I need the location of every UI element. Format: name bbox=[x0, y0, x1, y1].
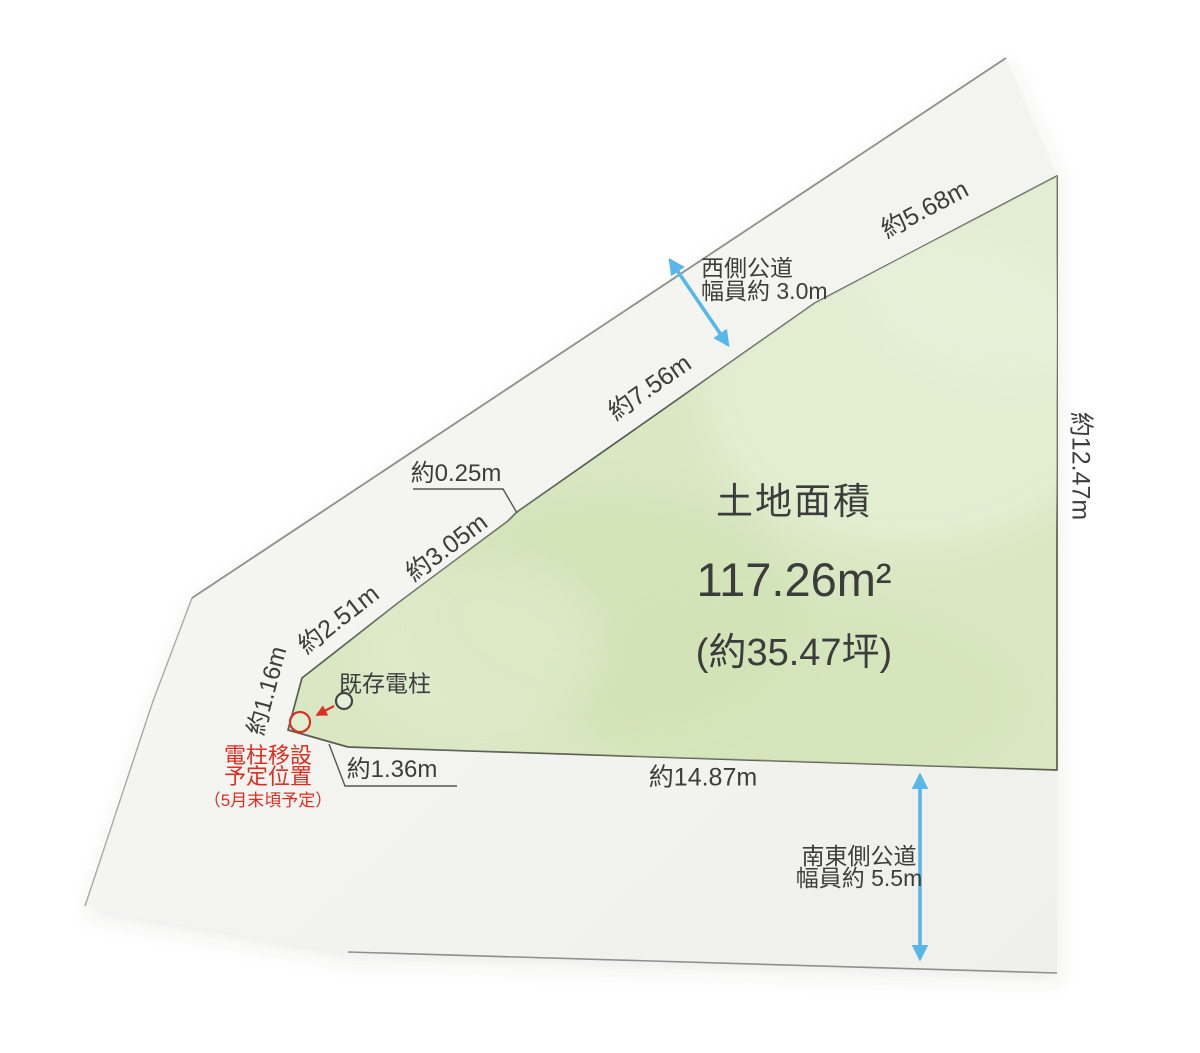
southeast-road-label: 南東側公道 幅員約 5.5m bbox=[796, 845, 923, 889]
dim-12-47m: 約12.47m bbox=[1068, 412, 1093, 520]
west-road-width: 幅員約 3.0m bbox=[701, 280, 828, 303]
land-area-tsubo: (約35.47坪) bbox=[696, 621, 892, 676]
pole-relocation-line1: 電柱移設 bbox=[204, 745, 332, 766]
land-area-title: 土地面積 bbox=[696, 471, 892, 525]
land-area-block: 土地面積 117.26m² (約35.47坪) bbox=[696, 471, 892, 676]
land-area-sqm: 117.26m² bbox=[696, 552, 892, 607]
dim-14-87m: 約14.87m bbox=[649, 766, 757, 791]
relocated-pole-marker bbox=[290, 712, 310, 732]
west-road-label: 西側公道 幅員約 3.0m bbox=[701, 257, 828, 303]
land-plot-diagram: 約5.68m 約7.56m 約0.25m 約3.05m 約2.51m 約1.16… bbox=[0, 0, 1200, 1053]
southeast-road-width: 幅員約 5.5m bbox=[796, 867, 923, 889]
existing-pole-label: 既存電柱 bbox=[339, 673, 431, 696]
dim-1-36m: 約1.36m bbox=[347, 758, 438, 782]
west-road-name: 西側公道 bbox=[701, 257, 828, 280]
pole-relocation-label: 電柱移設 予定位置 （5月末頃予定） bbox=[204, 745, 332, 811]
southeast-road-name: 南東側公道 bbox=[796, 845, 923, 867]
pole-relocation-line2: 予定位置 bbox=[204, 766, 332, 787]
pole-relocation-line3: （5月末頃予定） bbox=[204, 790, 332, 811]
dim-0-25m: 約0.25m bbox=[411, 462, 502, 486]
plot-drawing-canvas bbox=[0, 0, 1200, 1053]
